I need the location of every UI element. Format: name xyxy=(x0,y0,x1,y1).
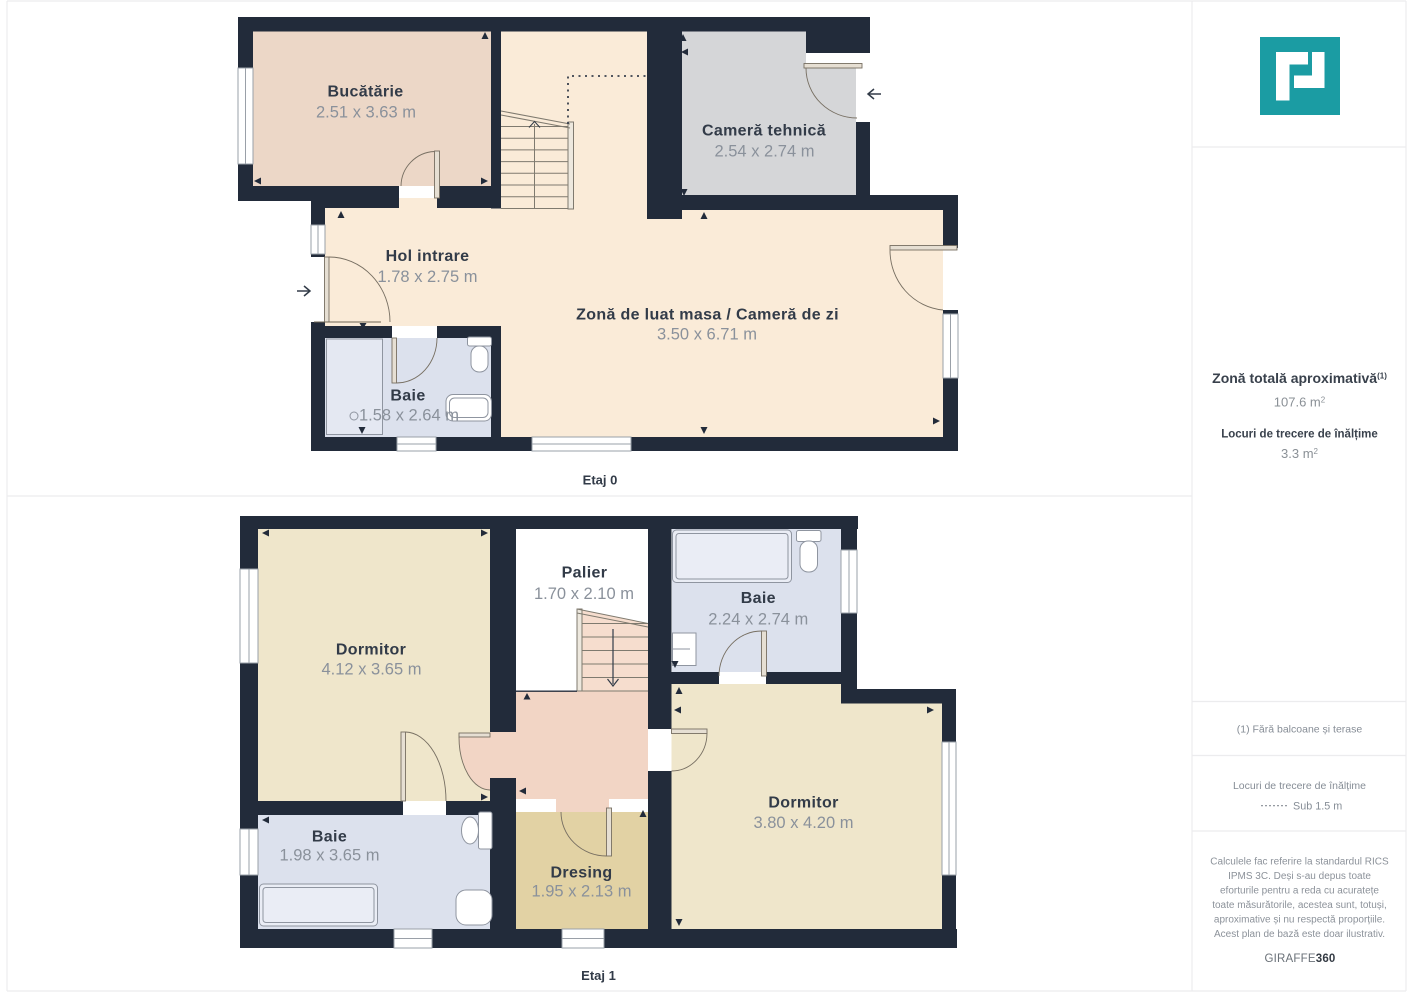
svg-text:Bucătărie: Bucătărie xyxy=(327,84,403,101)
svg-text:Baie: Baie xyxy=(741,590,776,607)
svg-text:Baie: Baie xyxy=(312,829,347,846)
svg-text:Dormitor: Dormitor xyxy=(768,795,838,812)
svg-text:aproximative și nu respectă pr: aproximative și nu respectă proporțiile. xyxy=(1214,915,1385,926)
svg-text:Acest plan de bază este doar i: Acest plan de bază este doar ilustrativ. xyxy=(1214,929,1385,940)
svg-text:Zonă totală aproximativă(1): Zonă totală aproximativă(1) xyxy=(1212,370,1387,386)
svg-text:1.78 x 2.75 m: 1.78 x 2.75 m xyxy=(378,268,478,286)
svg-text:IPMS 3C. Deși s-au depus toate: IPMS 3C. Deși s-au depus toate xyxy=(1228,871,1371,882)
svg-text:2.54 x 2.74 m: 2.54 x 2.74 m xyxy=(715,143,815,161)
svg-text:Zonă de luat masa / Cameră de: Zonă de luat masa / Cameră de zi xyxy=(576,307,839,324)
svg-text:Cameră tehnică: Cameră tehnică xyxy=(702,123,826,140)
svg-text:1.95 x 2.13 m: 1.95 x 2.13 m xyxy=(532,883,632,901)
svg-text:1.58 x 2.64 m: 1.58 x 2.64 m xyxy=(359,407,459,425)
svg-text:3.80 x 4.20 m: 3.80 x 4.20 m xyxy=(754,814,854,832)
svg-text:107.6 m2: 107.6 m2 xyxy=(1274,395,1326,410)
svg-text:Etaj 1: Etaj 1 xyxy=(581,968,616,983)
svg-text:eforturile pentru a reda cu ac: eforturile pentru a reda cu acuratețe xyxy=(1220,886,1379,897)
svg-text:1.70 x 2.10 m: 1.70 x 2.10 m xyxy=(534,585,634,603)
svg-text:Palier: Palier xyxy=(562,565,608,582)
svg-text:Dresing: Dresing xyxy=(550,865,612,882)
svg-text:4.12 x 3.65 m: 4.12 x 3.65 m xyxy=(322,661,422,679)
svg-text:Etaj 0: Etaj 0 xyxy=(583,473,618,488)
svg-text:Locuri de trecere de înălțime: Locuri de trecere de înălțime xyxy=(1221,429,1378,441)
svg-text:(1) Fără balcoane și terase: (1) Fără balcoane și terase xyxy=(1237,724,1363,736)
svg-text:3.3 m2: 3.3 m2 xyxy=(1281,446,1319,461)
svg-text:2.51 x 3.63 m: 2.51 x 3.63 m xyxy=(316,103,416,121)
svg-text:Baie: Baie xyxy=(390,388,425,405)
svg-text:GIRAFFE360: GIRAFFE360 xyxy=(1264,953,1335,965)
svg-text:2.24 x 2.74 m: 2.24 x 2.74 m xyxy=(708,611,808,629)
svg-text:Dormitor: Dormitor xyxy=(336,642,406,659)
svg-text:Sub 1.5 m: Sub 1.5 m xyxy=(1293,801,1342,813)
svg-text:toate măsurătorile, acestea su: toate măsurătorile, acestea sunt, totuși… xyxy=(1212,900,1387,911)
svg-text:Hol intrare: Hol intrare xyxy=(386,248,470,265)
svg-text:3.50 x 6.71 m: 3.50 x 6.71 m xyxy=(657,326,757,344)
svg-text:Locuri de trecere de înălțime: Locuri de trecere de înălțime xyxy=(1233,780,1366,792)
svg-text:1.98 x 3.65 m: 1.98 x 3.65 m xyxy=(280,847,380,865)
svg-text:Calculele fac referire la stan: Calculele fac referire la standardul RIC… xyxy=(1210,857,1389,868)
